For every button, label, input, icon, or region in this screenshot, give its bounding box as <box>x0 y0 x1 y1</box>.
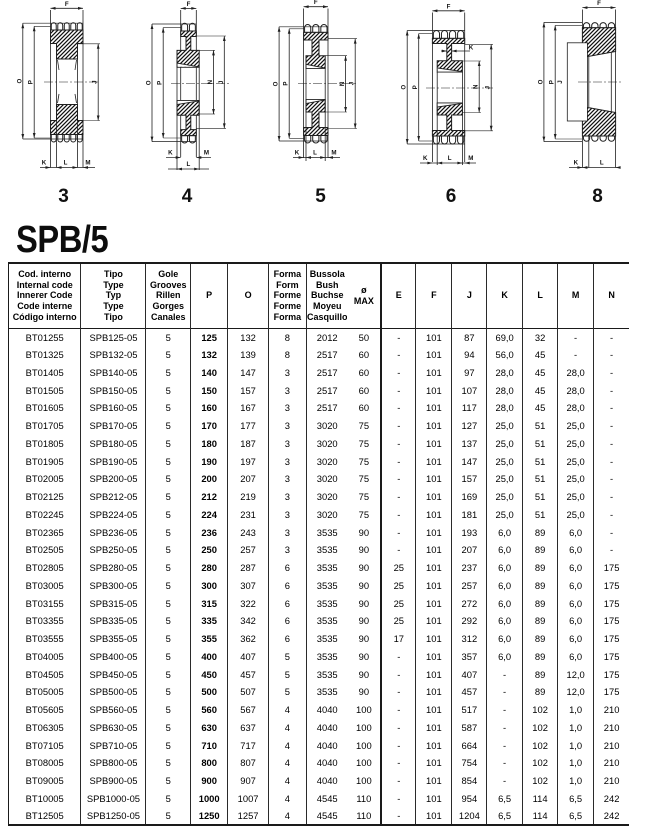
svg-text:M: M <box>331 150 336 157</box>
svg-text:O: O <box>273 81 280 86</box>
svg-text:P: P <box>283 81 290 85</box>
svg-text:O: O <box>401 85 408 90</box>
svg-text:N: N <box>207 79 214 84</box>
svg-text:L: L <box>600 160 604 167</box>
svg-text:L: L <box>187 161 191 168</box>
svg-text:5: 5 <box>315 186 326 207</box>
svg-text:K: K <box>42 160 47 167</box>
svg-text:K: K <box>574 160 579 167</box>
svg-text:M: M <box>468 155 473 162</box>
svg-text:J: J <box>218 80 225 84</box>
svg-text:F: F <box>65 1 69 8</box>
svg-text:N: N <box>473 84 480 89</box>
svg-text:4: 4 <box>182 186 193 207</box>
svg-text:F: F <box>187 1 191 8</box>
svg-text:K: K <box>423 155 428 162</box>
svg-text:O: O <box>146 80 153 85</box>
svg-text:N: N <box>339 81 346 86</box>
svg-text:J: J <box>349 81 356 85</box>
svg-text:P: P <box>157 81 164 85</box>
svg-text:3: 3 <box>58 186 69 207</box>
svg-text:L: L <box>64 160 68 167</box>
svg-text:J: J <box>557 80 564 84</box>
svg-text:F: F <box>314 0 318 6</box>
svg-text:K: K <box>469 45 474 52</box>
svg-text:M: M <box>85 160 90 167</box>
svg-text:6: 6 <box>446 186 457 207</box>
svg-text:J: J <box>92 80 99 84</box>
svg-text:P: P <box>28 80 35 84</box>
svg-text:J: J <box>485 85 492 89</box>
svg-text:P: P <box>549 80 556 84</box>
svg-text:F: F <box>597 0 601 7</box>
svg-text:8: 8 <box>592 186 603 207</box>
svg-text:O: O <box>537 79 544 84</box>
svg-text:K: K <box>168 150 173 157</box>
svg-text:K: K <box>295 150 300 157</box>
svg-text:L: L <box>313 150 317 157</box>
svg-text:L: L <box>448 155 452 162</box>
svg-text:P: P <box>412 85 419 89</box>
svg-text:M: M <box>204 150 209 157</box>
svg-text:O: O <box>16 79 23 84</box>
svg-text:F: F <box>447 3 451 10</box>
